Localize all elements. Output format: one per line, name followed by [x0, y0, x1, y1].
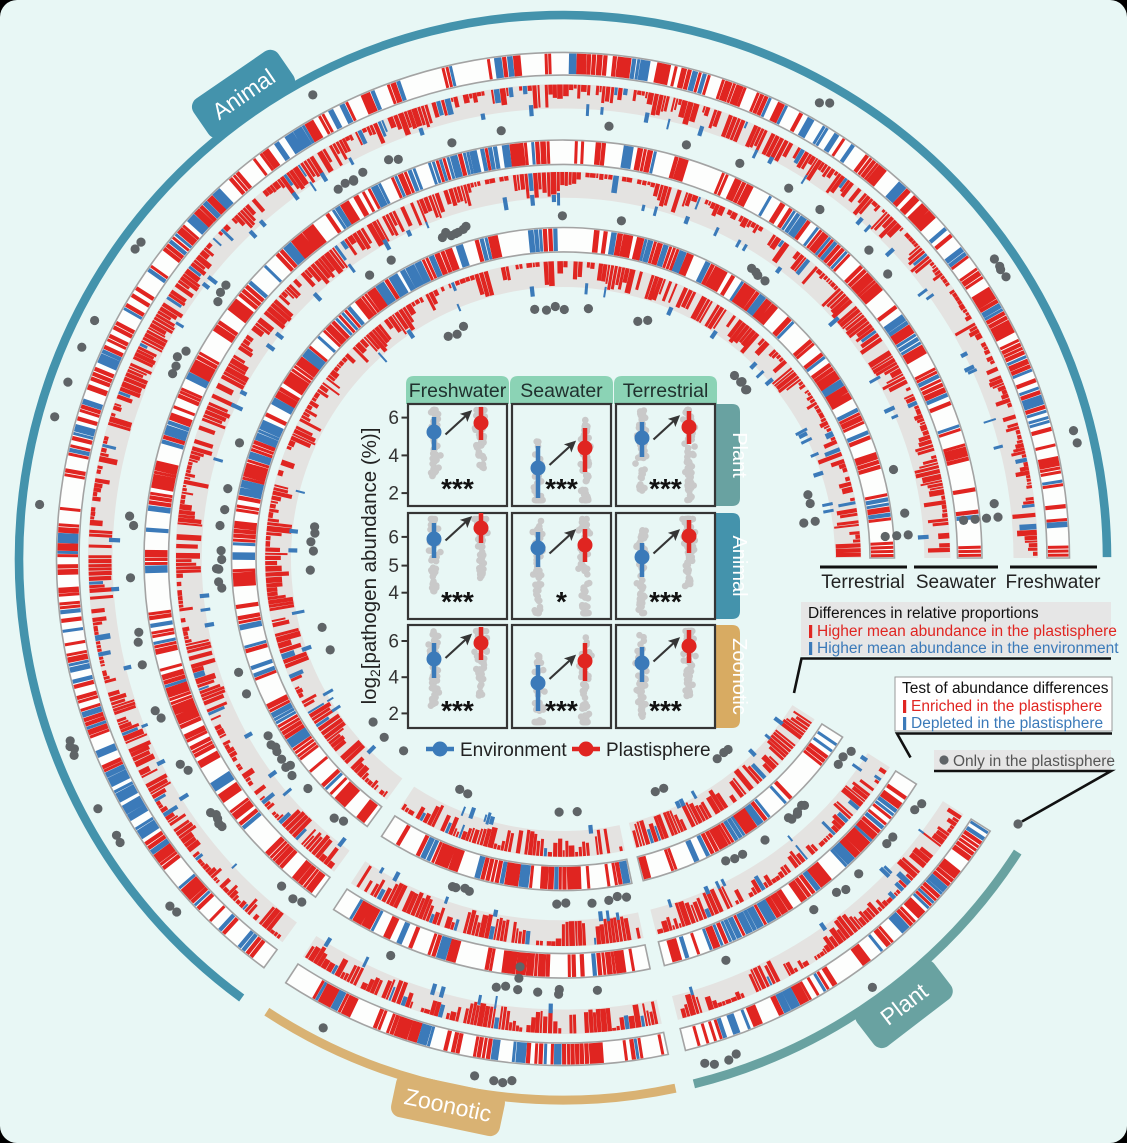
svg-text:Depleted in the plastisphere: Depleted in the plastisphere — [911, 715, 1103, 732]
svg-text:Terrestrial: Terrestrial — [821, 572, 904, 593]
svg-text:***: *** — [545, 473, 578, 504]
svg-text:Seawater: Seawater — [520, 380, 603, 402]
svg-text:5: 5 — [388, 556, 399, 577]
svg-text:6: 6 — [388, 527, 399, 548]
svg-text:log2[pathogen abundance (%)]: log2[pathogen abundance (%)] — [358, 428, 383, 705]
svg-text:6: 6 — [388, 408, 399, 429]
svg-text:2: 2 — [388, 484, 399, 505]
svg-text:4: 4 — [388, 668, 399, 689]
svg-text:***: *** — [441, 586, 474, 617]
svg-text:***: *** — [441, 695, 474, 726]
svg-text:*: * — [556, 586, 567, 617]
svg-text:2: 2 — [388, 704, 399, 725]
svg-text:***: *** — [545, 695, 578, 726]
svg-text:Animal: Animal — [728, 535, 750, 596]
svg-text:***: *** — [649, 586, 682, 617]
svg-text:4: 4 — [388, 446, 399, 467]
svg-text:Test of abundance differences: Test of abundance differences — [902, 680, 1109, 697]
svg-text:Freshwater: Freshwater — [409, 380, 507, 402]
svg-text:Freshwater: Freshwater — [1005, 572, 1101, 593]
svg-text:***: *** — [441, 473, 474, 504]
svg-text:***: *** — [649, 473, 682, 504]
svg-text:Plastisphere: Plastisphere — [606, 740, 711, 761]
svg-text:***: *** — [649, 695, 682, 726]
svg-text:Environment: Environment — [460, 740, 567, 761]
svg-text:Only in the plastisphere: Only in the plastisphere — [953, 753, 1115, 770]
svg-text:Enriched in the plastisphere: Enriched in the plastisphere — [911, 698, 1102, 715]
svg-text:Differences in relative propor: Differences in relative proportions — [808, 605, 1039, 622]
svg-text:6: 6 — [388, 632, 399, 653]
svg-text:Zoonotic: Zoonotic — [728, 638, 750, 715]
svg-text:Plant: Plant — [728, 432, 750, 478]
svg-text:4: 4 — [388, 583, 399, 604]
svg-text:Terrestrial: Terrestrial — [623, 380, 709, 402]
svg-text:Seawater: Seawater — [916, 572, 997, 593]
svg-text:Higher mean abundance in the e: Higher mean abundance in the environment — [817, 640, 1119, 657]
svg-text:Higher mean abundance in the p: Higher mean abundance in the plastispher… — [817, 623, 1117, 640]
